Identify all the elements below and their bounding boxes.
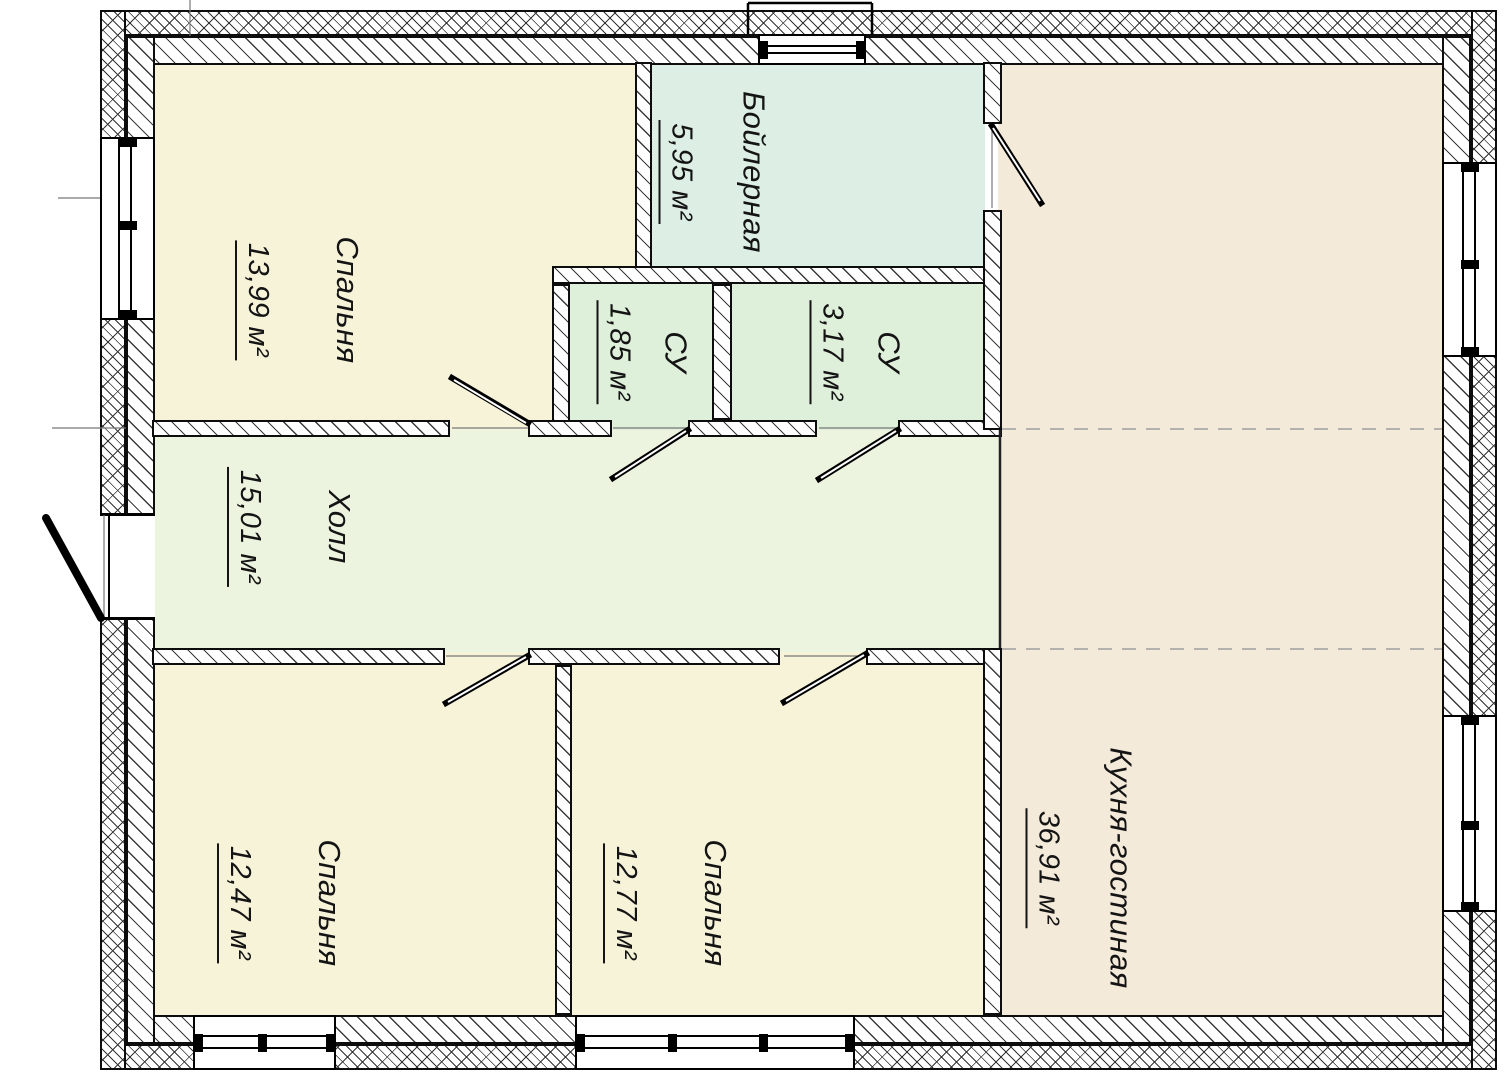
- room-area-label: 12,47 м²: [217, 843, 256, 963]
- room-area-label: 3,17 м²: [810, 300, 849, 404]
- room-label-wc-small: СУ 1,85 м²: [597, 300, 694, 404]
- room-label-kitchen-living: Кухня-гостиная 36,91 м²: [1026, 747, 1139, 988]
- kitchen-zone-dashed-lines: [1002, 429, 1442, 649]
- room-area-label: 12,77 м²: [603, 843, 642, 963]
- room-area-label: 5,95 м²: [659, 120, 698, 224]
- room-label-wc-big: СУ 3,17 м²: [810, 300, 907, 404]
- room-area-label: 13,99 м²: [235, 240, 274, 360]
- room-name-label: Кухня-гостиная: [1103, 747, 1139, 988]
- entrance-door-leaf: [46, 518, 101, 618]
- porch-notch: [748, 3, 872, 34]
- axis-ticks: [52, 0, 190, 428]
- room-name-label: СУ: [658, 331, 694, 372]
- room-name-label: СУ: [871, 331, 907, 372]
- room-label-boiler: Бойлерная 5,95 м²: [659, 91, 772, 253]
- room-label-bedroom-mid: Спальня 12,77 м²: [603, 839, 733, 966]
- room-area-label: 1,85 м²: [597, 300, 636, 404]
- room-name-label: Спальня: [697, 839, 733, 966]
- room-name-label: Спальня: [311, 839, 347, 966]
- room-label-hall: Холл 15,01 м²: [227, 467, 357, 587]
- room-name-label: Бойлерная: [736, 91, 772, 253]
- room-area-label: 36,91 м²: [1026, 808, 1065, 928]
- room-area-label: 15,01 м²: [227, 467, 266, 587]
- floor-plan-sheet: Спальня 13,99 м² Бойлерная 5,95 м² СУ 1,…: [0, 0, 1511, 1080]
- room-name-label: Холл: [321, 490, 357, 564]
- room-label-bedroom-left: Спальня 12,47 м²: [217, 839, 347, 966]
- room-name-label: Спальня: [329, 236, 365, 363]
- room-label-bedroom-top: Спальня 13,99 м²: [235, 236, 365, 363]
